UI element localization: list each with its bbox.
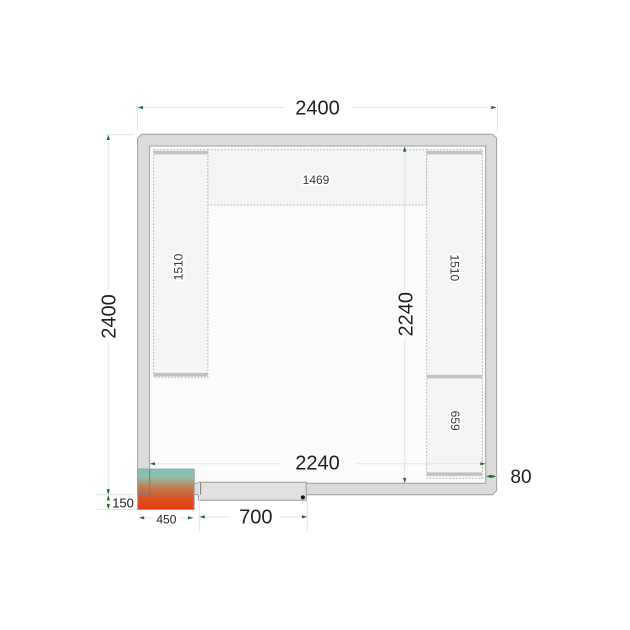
svg-text:2240: 2240: [395, 292, 417, 337]
svg-text:700: 700: [239, 506, 272, 528]
svg-text:659: 659: [448, 411, 462, 431]
svg-text:2400: 2400: [99, 294, 121, 339]
svg-text:150: 150: [112, 496, 134, 511]
svg-text:1469: 1469: [303, 173, 330, 187]
svg-text:1510: 1510: [171, 253, 185, 280]
svg-text:2240: 2240: [295, 453, 340, 475]
svg-text:450: 450: [156, 513, 176, 527]
svg-text:1510: 1510: [448, 254, 462, 281]
svg-text:2400: 2400: [295, 97, 340, 119]
svg-text:80: 80: [510, 467, 531, 488]
